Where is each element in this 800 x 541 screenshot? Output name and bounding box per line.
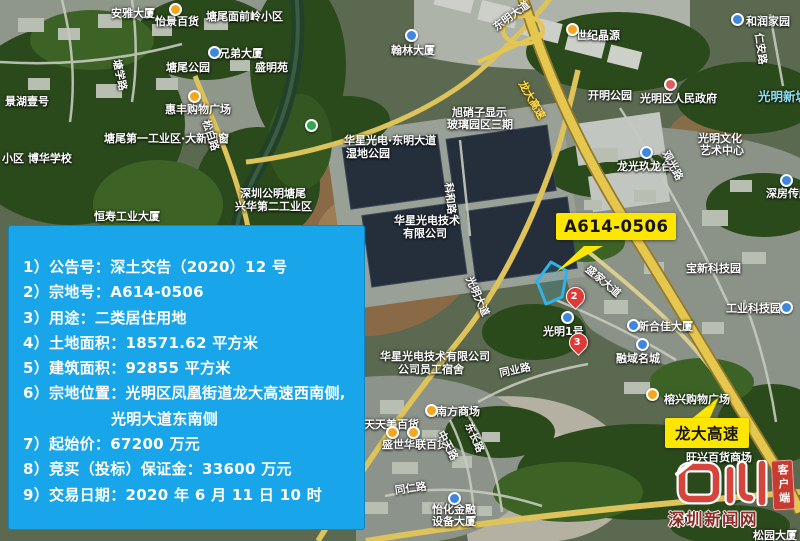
parcel-callout: A614-0506	[556, 213, 676, 240]
panel-line: 3）用途：二类居住用地	[23, 306, 354, 331]
shenzhen-news-logo-icon	[674, 460, 774, 506]
panel-line: 6）宗地位置：光明区凤凰街道龙大高速西南侧,	[23, 381, 354, 406]
panel-line: 8）竞买（投标）保证金：33600 万元	[23, 457, 354, 482]
panel-line: 5）建筑面积：92855 平方米	[23, 356, 354, 381]
panel-line: 9）交易日期：2020 年 6 月 11 日 10 时	[23, 483, 354, 508]
highway-callout: 龙大高速	[665, 418, 749, 448]
watermark-client-badge: 客户端	[771, 459, 796, 510]
panel-line: 光明大道东南侧	[23, 407, 354, 432]
land-info-panel: 1）公告号：深土交告（2020）12 号 2）宗地号：A614-0506 3）用…	[8, 225, 365, 530]
panel-line: 2）宗地号：A614-0506	[23, 280, 354, 305]
panel-line: 1）公告号：深土交告（2020）12 号	[23, 255, 354, 280]
panel-line: 4）土地面积：18571.62 平方米	[23, 331, 354, 356]
watermark: 深圳新闻网 客户端	[660, 458, 796, 530]
news-map-screenshot: 安雅大厦怡景百货塘尾面前岭小区兄弟大厦盛明苑塘尾公园景湖壹号惠丰购物广场翰林大厦…	[0, 0, 800, 541]
panel-line: 7）起始价：67200 万元	[23, 432, 354, 457]
watermark-site-name: 深圳新闻网	[668, 506, 780, 530]
